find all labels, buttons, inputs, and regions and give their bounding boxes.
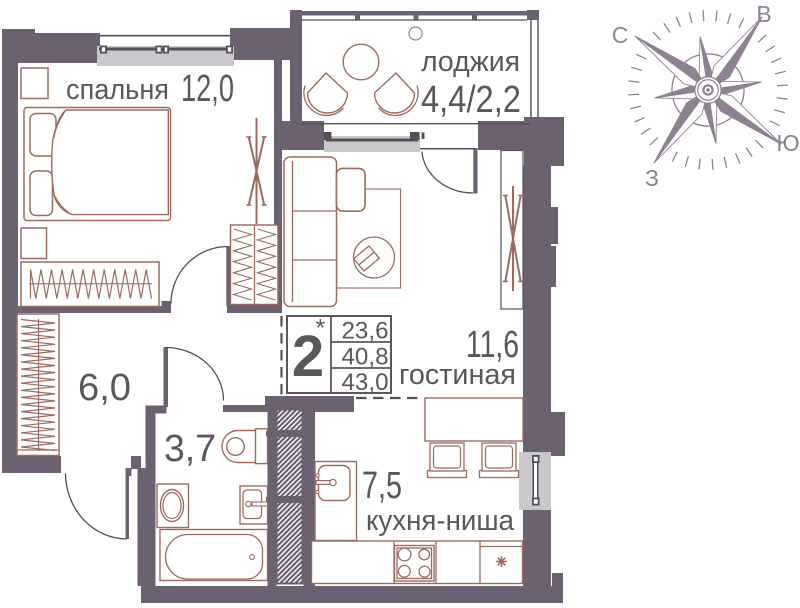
svg-text:спальня: спальня	[66, 74, 169, 106]
svg-text:кухня-ниша: кухня-ниша	[366, 505, 515, 537]
svg-text:*: *	[316, 315, 326, 343]
svg-text:12,0: 12,0	[181, 68, 234, 110]
svg-text:43,0: 43,0	[342, 369, 389, 396]
svg-text:6,0: 6,0	[78, 367, 131, 409]
svg-text:С: С	[612, 22, 629, 48]
svg-text:7,5: 7,5	[362, 465, 402, 507]
svg-text:3,7: 3,7	[164, 428, 216, 470]
svg-text:гостиная: гостиная	[399, 359, 516, 391]
svg-text:Ю: Ю	[776, 130, 799, 156]
svg-text:лоджия: лоджия	[421, 46, 520, 78]
svg-text:23,6: 23,6	[342, 318, 389, 345]
svg-text:З: З	[645, 165, 659, 191]
svg-text:В: В	[756, 1, 771, 27]
svg-text:4,4/2,2: 4,4/2,2	[421, 79, 521, 121]
svg-text:40,8: 40,8	[342, 344, 389, 371]
